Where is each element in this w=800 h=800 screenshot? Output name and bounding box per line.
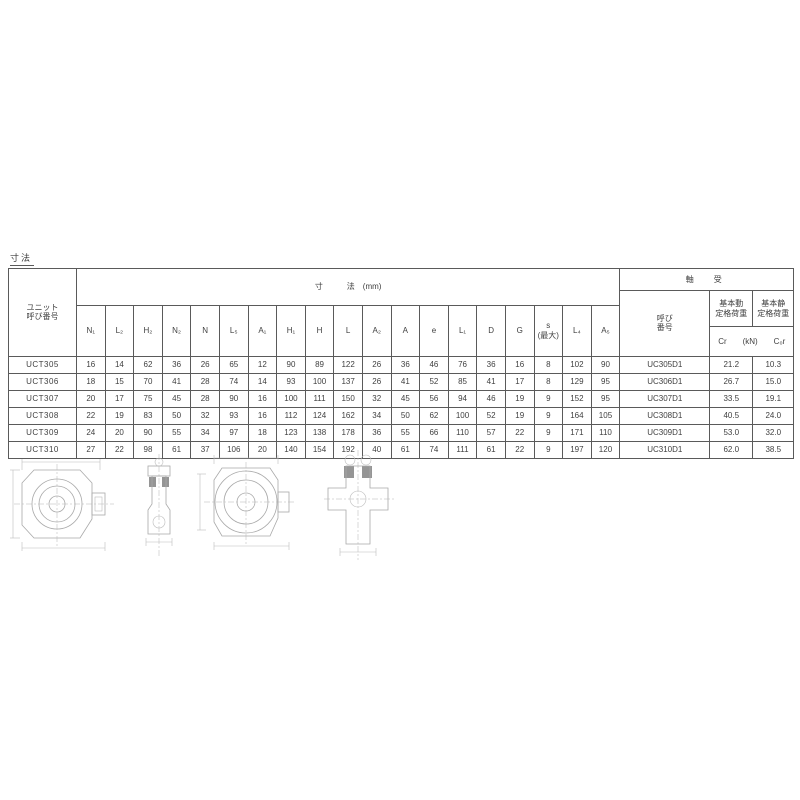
dim-value-cell: 36 <box>362 424 391 441</box>
bearing-number-cell: UC308D1 <box>620 407 710 424</box>
dim-value-cell: 19 <box>505 407 534 424</box>
static-rating-cell: 24.0 <box>753 407 794 424</box>
dim-value-cell: 52 <box>477 407 506 424</box>
dim-value-cell: 14 <box>105 356 134 373</box>
dim-value-cell: 90 <box>591 356 620 373</box>
table-row: UCT3061815704128741493100137264152854117… <box>9 373 794 390</box>
table-row: UCT3092420905534971812313817836556611057… <box>9 424 794 441</box>
dim-value-cell: 16 <box>248 390 277 407</box>
technical-drawings <box>0 448 800 568</box>
dim-value-cell: 32 <box>191 407 220 424</box>
dim-header-cell: N₂ <box>162 306 191 357</box>
dim-header-cell: N₁ <box>77 306 106 357</box>
dim-value-cell: 56 <box>420 390 449 407</box>
unit-number-cell: UCT306 <box>9 373 77 390</box>
dim-value-cell: 9 <box>534 424 563 441</box>
unit-number-cell: UCT309 <box>9 424 77 441</box>
unit-number-cell: UCT308 <box>9 407 77 424</box>
bearing-number-header: 呼び 番号 <box>620 291 710 357</box>
dim-value-cell: 46 <box>477 390 506 407</box>
dim-value-cell: 171 <box>563 424 592 441</box>
dim-value-cell: 70 <box>134 373 163 390</box>
dim-value-cell: 50 <box>162 407 191 424</box>
dim-value-cell: 178 <box>334 424 363 441</box>
dim-value-cell: 41 <box>162 373 191 390</box>
bearing-number-cell: UC306D1 <box>620 373 710 390</box>
dim-value-cell: 16 <box>77 356 106 373</box>
dim-value-cell: 12 <box>248 356 277 373</box>
dim-value-cell: 90 <box>134 424 163 441</box>
dim-value-cell: 100 <box>448 407 477 424</box>
dim-value-cell: 32 <box>362 390 391 407</box>
front-view-drawing <box>8 456 130 556</box>
dim-value-cell: 85 <box>448 373 477 390</box>
dim-value-cell: 34 <box>191 424 220 441</box>
dim-value-cell: 93 <box>219 407 248 424</box>
dim-value-cell: 83 <box>134 407 163 424</box>
dim-header-cell: L₂ <box>105 306 134 357</box>
bearing-group-header: 軸 受 <box>620 269 794 291</box>
dim-value-cell: 16 <box>505 356 534 373</box>
dim-value-cell: 20 <box>105 424 134 441</box>
dim-header-cell: s (最大) <box>534 306 563 357</box>
dynamic-rating-cell: 53.0 <box>710 424 753 441</box>
dim-header-cell: L₁ <box>448 306 477 357</box>
dim-value-cell: 95 <box>591 373 620 390</box>
dim-value-cell: 152 <box>563 390 592 407</box>
dim-header-cell: A₁ <box>248 306 277 357</box>
dim-value-cell: 100 <box>305 373 334 390</box>
dim-value-cell: 26 <box>362 356 391 373</box>
dim-value-cell: 45 <box>162 390 191 407</box>
dim-value-cell: 112 <box>277 407 306 424</box>
dim-value-cell: 75 <box>134 390 163 407</box>
dim-value-cell: 97 <box>219 424 248 441</box>
static-rating-header: 基本静 定格荷重 <box>753 291 794 327</box>
dim-value-cell: 15 <box>105 373 134 390</box>
static-rating-cell: 10.3 <box>753 356 794 373</box>
dim-value-cell: 62 <box>420 407 449 424</box>
dim-value-cell: 28 <box>191 390 220 407</box>
dim-value-cell: 14 <box>248 373 277 390</box>
dim-header-cell: A <box>391 306 420 357</box>
dim-header-cell: A₂ <box>362 306 391 357</box>
bearing-number-cell: UC305D1 <box>620 356 710 373</box>
dim-value-cell: 26 <box>191 356 220 373</box>
dim-value-cell: 55 <box>391 424 420 441</box>
catalog-page: 寸法 ユニット 呼び番号 寸 法 (mm) 軸 受 呼び 番号 基本動 定格荷重… <box>0 0 800 800</box>
dim-value-cell: 41 <box>477 373 506 390</box>
dim-value-cell: 8 <box>534 373 563 390</box>
dim-value-cell: 89 <box>305 356 334 373</box>
dim-value-cell: 18 <box>248 424 277 441</box>
dim-value-cell: 20 <box>77 390 106 407</box>
dim-value-cell: 62 <box>134 356 163 373</box>
dynamic-rating-cell: 26.7 <box>710 373 753 390</box>
dim-value-cell: 102 <box>563 356 592 373</box>
dim-value-cell: 36 <box>391 356 420 373</box>
dim-value-cell: 57 <box>477 424 506 441</box>
dim-value-cell: 122 <box>334 356 363 373</box>
dim-value-cell: 110 <box>591 424 620 441</box>
dim-header-cell: D <box>477 306 506 357</box>
dim-value-cell: 76 <box>448 356 477 373</box>
dim-value-cell: 34 <box>362 407 391 424</box>
dim-value-cell: 45 <box>391 390 420 407</box>
dim-value-cell: 36 <box>477 356 506 373</box>
cor-label: C₀r <box>774 337 786 347</box>
dynamic-rating-header: 基本動 定格荷重 <box>710 291 753 327</box>
static-rating-cell: 15.0 <box>753 373 794 390</box>
dim-value-cell: 110 <box>448 424 477 441</box>
side-view-drawing <box>136 452 182 560</box>
dimension-spec-table: ユニット 呼び番号 寸 法 (mm) 軸 受 呼び 番号 基本動 定格荷重 基本… <box>8 268 794 459</box>
dim-header-cell: L₅ <box>219 306 248 357</box>
dim-value-cell: 17 <box>505 373 534 390</box>
static-rating-cell: 19.1 <box>753 390 794 407</box>
dim-value-cell: 18 <box>77 373 106 390</box>
dim-value-cell: 46 <box>420 356 449 373</box>
dim-value-cell: 123 <box>277 424 306 441</box>
dim-value-cell: 19 <box>505 390 534 407</box>
dim-header-cell: H₂ <box>134 306 163 357</box>
table-row: UCT3072017754528901610011115032455694461… <box>9 390 794 407</box>
dim-header-cell: L <box>334 306 363 357</box>
header-row-groups: ユニット 呼び番号 寸 法 (mm) 軸 受 <box>9 269 794 291</box>
dim-value-cell: 24 <box>77 424 106 441</box>
dim-value-cell: 22 <box>77 407 106 424</box>
dim-value-cell: 36 <box>162 356 191 373</box>
kn-unit-label: (kN) <box>743 337 758 347</box>
dim-value-cell: 95 <box>591 390 620 407</box>
page-section-label: 寸法 <box>10 251 34 266</box>
dim-value-cell: 52 <box>420 373 449 390</box>
dim-value-cell: 124 <box>305 407 334 424</box>
unit-number-column-header: ユニット 呼び番号 <box>9 269 77 357</box>
section-view-drawing <box>316 448 400 566</box>
dim-value-cell: 129 <box>563 373 592 390</box>
dim-value-cell: 9 <box>534 407 563 424</box>
dimensions-group-header: 寸 法 (mm) <box>77 269 620 306</box>
dim-value-cell: 28 <box>191 373 220 390</box>
dim-header-cell: e <box>420 306 449 357</box>
dim-value-cell: 93 <box>277 373 306 390</box>
dim-value-cell: 16 <box>248 407 277 424</box>
dynamic-rating-cell: 40.5 <box>710 407 753 424</box>
dim-header-cell: H <box>305 306 334 357</box>
dim-value-cell: 65 <box>219 356 248 373</box>
dim-value-cell: 50 <box>391 407 420 424</box>
unit-number-cell: UCT305 <box>9 356 77 373</box>
dim-header-cell: A₅ <box>591 306 620 357</box>
cr-label: Cr <box>718 337 726 347</box>
dim-value-cell: 138 <box>305 424 334 441</box>
dim-value-cell: 19 <box>105 407 134 424</box>
dim-value-cell: 55 <box>162 424 191 441</box>
dim-value-cell: 137 <box>334 373 363 390</box>
unit-number-cell: UCT307 <box>9 390 77 407</box>
dim-value-cell: 111 <box>305 390 334 407</box>
dim-header-cell: G <box>505 306 534 357</box>
dim-value-cell: 17 <box>105 390 134 407</box>
dim-value-cell: 94 <box>448 390 477 407</box>
dynamic-rating-cell: 21.2 <box>710 356 753 373</box>
rating-units-cell: Cr (kN) C₀r <box>710 327 794 357</box>
dim-value-cell: 9 <box>534 390 563 407</box>
dim-value-cell: 41 <box>391 373 420 390</box>
dim-value-cell: 100 <box>277 390 306 407</box>
dim-value-cell: 150 <box>334 390 363 407</box>
dynamic-rating-cell: 33.5 <box>710 390 753 407</box>
dim-header-cell: H₁ <box>277 306 306 357</box>
bearing-number-cell: UC309D1 <box>620 424 710 441</box>
bearing-number-cell: UC307D1 <box>620 390 710 407</box>
dim-value-cell: 90 <box>277 356 306 373</box>
front-view-2-drawing <box>192 452 302 558</box>
table-row: UCT3051614623626651290891222636467636168… <box>9 356 794 373</box>
dim-value-cell: 90 <box>219 390 248 407</box>
dim-value-cell: 26 <box>362 373 391 390</box>
dim-value-cell: 22 <box>505 424 534 441</box>
table-row: UCT3082219835032931611212416234506210052… <box>9 407 794 424</box>
dim-header-cell: N <box>191 306 220 357</box>
dim-value-cell: 164 <box>563 407 592 424</box>
dim-value-cell: 8 <box>534 356 563 373</box>
dim-value-cell: 162 <box>334 407 363 424</box>
static-rating-cell: 32.0 <box>753 424 794 441</box>
dim-value-cell: 105 <box>591 407 620 424</box>
dim-header-cell: L₄ <box>563 306 592 357</box>
dim-value-cell: 66 <box>420 424 449 441</box>
dim-value-cell: 74 <box>219 373 248 390</box>
